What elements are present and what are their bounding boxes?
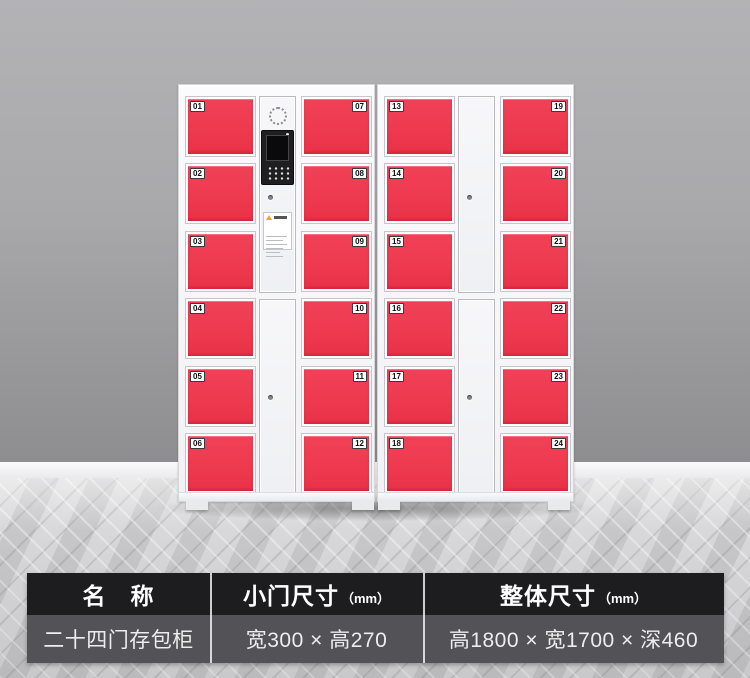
locker-door-13: 13: [384, 96, 455, 157]
instruction-sticker: [263, 212, 292, 250]
door-number-tag: 23: [551, 371, 566, 382]
spec-header-name: 名 称: [27, 573, 210, 615]
door-number-tag: 12: [352, 438, 367, 449]
product-scene: 01 02 03 04 05 06 07 08 09 10 11: [0, 0, 750, 678]
sticker-title-bar: [274, 216, 287, 219]
door-number-tag: 16: [389, 303, 404, 314]
cabinet-foot: [548, 501, 570, 510]
locker-door-22: 22: [500, 298, 571, 359]
spec-table-value-row: 二十四门存包柜 宽300 × 高270 高1800 × 宽1700 × 深460: [27, 615, 724, 663]
locker-door-08: 08: [301, 163, 372, 224]
locker-door-05: 05: [185, 366, 256, 427]
door-number-tag: 04: [190, 303, 205, 314]
locker-door-19: 19: [500, 96, 571, 157]
locker-door-24: 24: [500, 433, 571, 494]
door-number-tag: 11: [353, 371, 367, 382]
locker-cabinet-left: 01 02 03 04 05 06 07 08 09 10 11: [178, 84, 375, 502]
locker-door-21: 21: [500, 231, 571, 292]
control-column-panel: [259, 96, 296, 293]
door-number-tag: 07: [352, 101, 367, 112]
warning-triangle-icon: [266, 215, 272, 220]
door-number-tag: 18: [389, 438, 404, 449]
locker-door-04: 04: [185, 298, 256, 359]
locker-cabinet-right: 13 14 15 16 17 18 19 20 21 22 23 24: [377, 84, 574, 502]
door-number-tag: 03: [190, 236, 205, 247]
locker-door-12: 12: [301, 433, 372, 494]
header-label: 名 称: [83, 577, 155, 611]
locker-door-16: 16: [384, 298, 455, 359]
keyhole-icon: [268, 195, 273, 200]
locker-door-17: 17: [384, 366, 455, 427]
locker-door-01: 01: [185, 96, 256, 157]
locker-door-11: 11: [301, 366, 372, 427]
keyhole-icon: [268, 395, 273, 400]
door-number-tag: 01: [190, 101, 205, 112]
cabinet-base: [378, 492, 573, 501]
intercom-control-panel: [261, 130, 294, 185]
cabinet-base: [179, 492, 374, 501]
wall-baseboard: [0, 462, 750, 478]
spec-value-door-size: 宽300 × 高270: [210, 615, 423, 663]
locker-door-09: 09: [301, 231, 372, 292]
table-column-divider: [423, 573, 425, 663]
header-label: 整体尺寸: [500, 577, 596, 611]
locker-door-20: 20: [500, 163, 571, 224]
header-unit: （mm）: [598, 582, 647, 607]
locker-door-18: 18: [384, 433, 455, 494]
door-number-tag: 21: [551, 236, 566, 247]
cabinet-foot: [352, 501, 374, 510]
blank-column-panel: [458, 299, 495, 494]
locker-door-03: 03: [185, 231, 256, 292]
locker-door-15: 15: [384, 231, 455, 292]
door-number-tag: 02: [190, 168, 205, 179]
door-number-tag: 20: [551, 168, 566, 179]
keyhole-icon: [467, 195, 472, 200]
door-number-tag: 19: [551, 101, 566, 112]
door-number-tag: 14: [389, 168, 404, 179]
cabinet-foot: [378, 501, 400, 510]
wall-background: [0, 0, 750, 463]
spec-header-door-size: 小门尺寸 （mm）: [210, 573, 423, 615]
door-number-tag: 10: [352, 303, 367, 314]
keyhole-icon: [467, 395, 472, 400]
door-number-tag: 17: [389, 371, 404, 382]
door-number-tag: 22: [551, 303, 566, 314]
spec-value-overall-size: 高1800 × 宽1700 × 深460: [423, 615, 724, 663]
spec-table: 名 称 小门尺寸 （mm） 整体尺寸 （mm） 二十四门存包柜 宽300 × 高…: [27, 573, 724, 663]
door-number-tag: 05: [190, 371, 205, 382]
door-number-tag: 13: [389, 101, 404, 112]
value-label: 高1800 × 宽1700 × 深460: [449, 624, 698, 654]
locker-door-02: 02: [185, 163, 256, 224]
blank-column-panel: [458, 96, 495, 293]
door-number-tag: 24: [551, 438, 566, 449]
service-column-panel: [259, 299, 296, 494]
control-screen: [266, 135, 289, 161]
door-number-tag: 06: [190, 438, 205, 449]
table-column-divider: [210, 573, 212, 663]
spec-header-overall-size: 整体尺寸 （mm）: [423, 573, 724, 615]
locker-door-06: 06: [185, 433, 256, 494]
header-label: 小门尺寸: [243, 577, 339, 611]
spec-value-name: 二十四门存包柜: [27, 615, 210, 663]
locker-door-07: 07: [301, 96, 372, 157]
locker-door-23: 23: [500, 366, 571, 427]
value-label: 宽300 × 高270: [246, 624, 388, 654]
door-number-tag: 09: [352, 236, 367, 247]
header-unit: （mm）: [341, 582, 390, 607]
door-number-tag: 15: [389, 236, 404, 247]
keypad: [266, 165, 290, 181]
speaker-grille-icon: [269, 107, 287, 125]
door-number-tag: 08: [352, 168, 367, 179]
value-label: 二十四门存包柜: [43, 624, 194, 654]
locker-door-10: 10: [301, 298, 372, 359]
locker-door-14: 14: [384, 163, 455, 224]
cabinet-foot: [186, 501, 208, 510]
spec-table-header-row: 名 称 小门尺寸 （mm） 整体尺寸 （mm）: [27, 573, 724, 615]
